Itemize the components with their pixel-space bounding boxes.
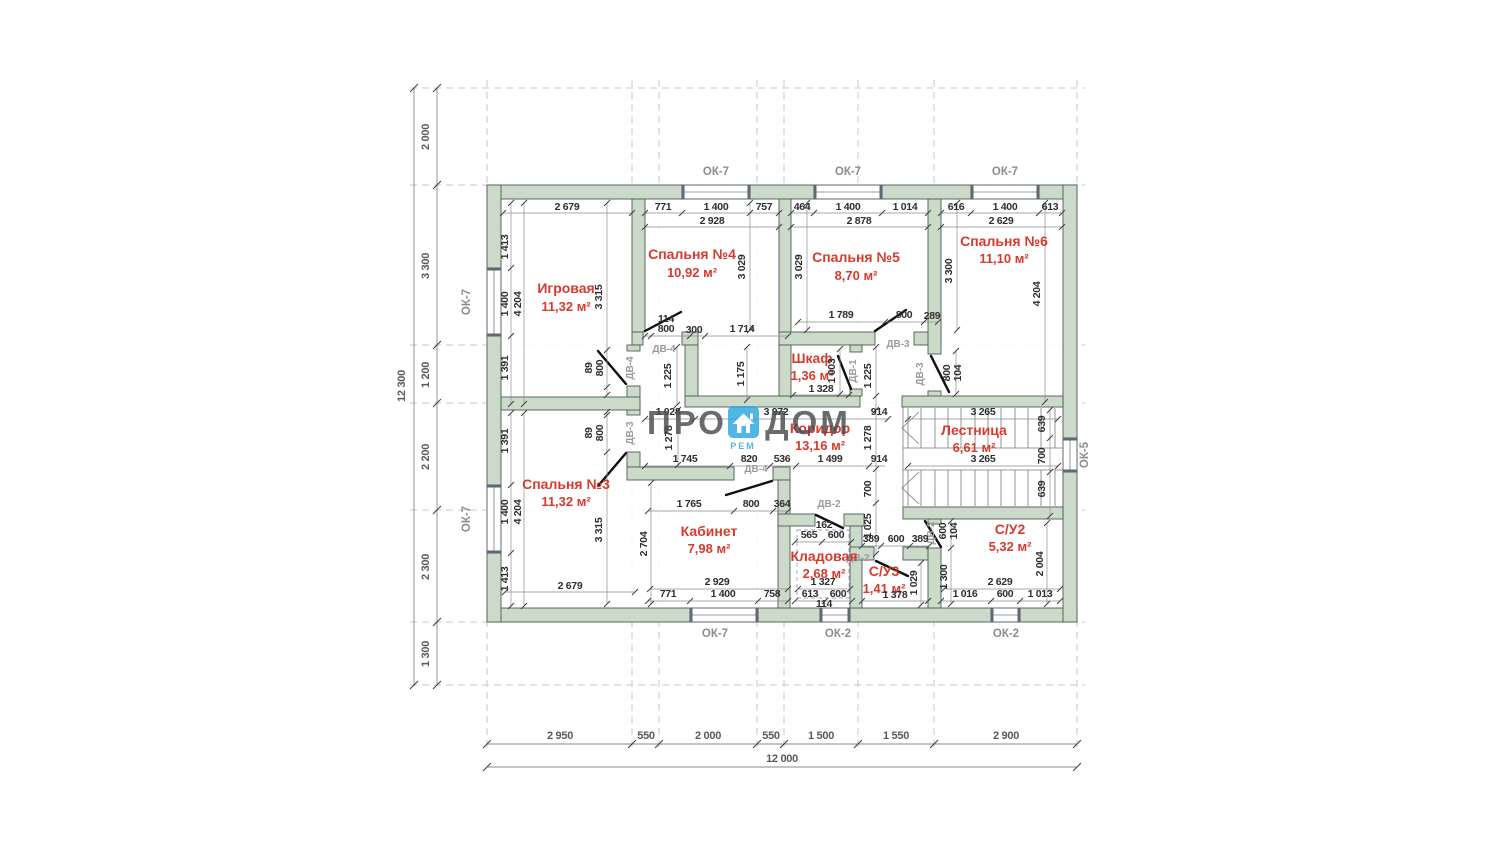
axis-bottom-total: 12 000 [766,753,798,765]
dim-label: 3 315 [593,284,605,309]
dim-label: 1 328 [809,383,834,395]
dim-label: 1 013 [1028,588,1053,600]
window-label-ok7: ОК-7 [702,628,728,640]
door-label-dv4: ДВ-4 [744,464,768,475]
door-label-dv3: ДВ-3 [915,362,926,386]
dim-label: 289 [924,310,941,322]
window-label-ok7: ОК-7 [461,289,473,315]
logo-text-dom: ДОМ [765,404,851,441]
room-label-lestnica: Лестница [941,422,1007,438]
axis-left-seg: 3 300 [420,253,432,279]
dim-label: 364 [774,498,791,510]
dim-label: 1 745 [673,453,698,465]
dim-label: 1 391 [499,355,511,380]
logo-text-pro: ПРО [647,404,727,441]
room-label-bedroom4: Спальня №4 [648,246,736,262]
dim-label: 1 003 [826,358,838,383]
dim-label: 2 929 [705,576,730,588]
door-label-dv4: ДВ-4 [625,356,636,380]
axis-left-seg: 1 300 [420,641,432,667]
dim-label: 4 204 [512,499,524,524]
room-area-bedroom5: 8,70 м² [835,268,879,283]
dim-label: 1 400 [836,201,861,213]
door-label-dv1: ДВ-1 [848,359,859,383]
window-label-ok7: ОК-7 [461,506,473,532]
dim-label: 1 225 [662,363,674,388]
dim-label: 800 [896,309,913,321]
axis-left-seg: 1 200 [420,362,432,388]
dim-label: 1 300 [938,564,950,589]
window-label-ok2: ОК-2 [993,628,1019,640]
window-ok7-bottom [690,608,758,622]
dim-label: 2 878 [847,215,872,227]
dim-label: 4 204 [512,291,524,316]
dim-label: 800 [594,359,606,376]
axis-left-seg: 2 200 [420,444,432,470]
dim-label: 3 300 [943,258,955,283]
dim-label: 114 [816,598,832,610]
dim-label: 914 [871,406,888,418]
room-area-igrovaya: 11,32 м² [541,299,591,314]
logo-text-rem: РЕМ [730,441,756,451]
dim-label: 464 [794,201,811,213]
dim-label: 800 [658,323,675,335]
dim-label: 820 [741,453,758,465]
dim-label: 1 499 [818,453,843,465]
dim-label: 1 400 [499,291,511,316]
dim-label: 3 265 [971,406,996,418]
axis-bottom-seg: 550 [762,730,780,742]
dim-label: 1 400 [993,201,1018,213]
axis-bottom-seg: 2 000 [695,730,721,742]
dim-label: 2 629 [989,215,1014,227]
window-label-ok7: ОК-7 [992,166,1018,178]
dim-label: 1 400 [704,201,729,213]
dim-label: 1 714 [730,323,755,335]
dim-label: 1 175 [735,361,747,386]
floor-plan-page: 2 000 3 300 1 200 2 200 2 300 1 300 12 3… [0,0,1500,849]
door-label-dv3: ДВ-3 [625,421,636,445]
dim-label: 4 204 [1031,281,1043,306]
dim-label: 2 629 [988,576,1013,588]
dim-label: 2 928 [700,215,725,227]
dim-label: 600 [830,588,847,600]
dim-label: 1 400 [499,499,511,524]
window-label-ok7: ОК-7 [703,166,729,178]
dim-label: 600 [997,588,1014,600]
room-area-bedroom6: 11,10 м² [979,251,1029,266]
dim-label: 758 [764,588,781,600]
axis-bottom-seg: 1 500 [808,730,834,742]
dim-label: 1 278 [862,425,874,450]
door-label-dv2: ДВ-2 [817,499,841,510]
room-area-su2: 5,32 м² [989,539,1033,554]
room-label-kladovaya: Кладовая [790,548,857,564]
window-ok7-top-2 [814,185,882,199]
dim-label: 600 [888,533,905,545]
window-label-ok7: ОК-7 [835,166,861,178]
dim-label: 104 [952,364,964,381]
room-label-bedroom6: Спальня №6 [960,233,1048,249]
dim-label: 3 029 [736,254,748,279]
room-label-bedroom3: Спальня №3 [522,476,610,492]
axis-left-seg: 2 300 [420,554,432,580]
room-label-kabinet: Кабинет [681,523,738,539]
axis-bottom-seg: 2 900 [993,730,1019,742]
dim-label: 639 [1036,480,1048,497]
dim-label: 536 [774,453,791,465]
dim-label: 771 [655,201,672,213]
dim-label: 800 [743,498,760,510]
dim-label: 1 327 [811,576,836,588]
window-ok5-right [1063,438,1077,472]
dim-label: 3 265 [971,453,996,465]
dim-label: 2 004 [1034,551,1046,576]
room-area-bedroom4: 10,92 м² [667,265,718,280]
room-label-su3: С/У3 [869,563,900,579]
window-ok7-top-3 [971,185,1039,199]
dim-label: 2 704 [638,531,650,556]
axis-left-total: 12 300 [396,370,408,402]
dim-label: 639 [1036,415,1048,432]
window-ok2-bottom-1 [820,608,850,622]
dim-label: 565 [801,529,818,541]
dim-label: 3 315 [593,517,605,542]
house-icon [728,406,759,438]
dim-label: 1 016 [953,588,978,600]
dim-label: 1 225 [862,363,874,388]
dim-label: 1 391 [499,428,511,453]
dim-label: 1 413 [499,234,511,259]
room-label-igrovaya: Игровая [537,280,594,296]
dim-label: 616 [948,201,965,213]
dim-label: 3 029 [793,254,805,279]
dim-label: 757 [756,201,773,213]
window-ok2-bottom-2 [991,608,1020,622]
dim-label: 914 [871,453,888,465]
axis-bottom-seg: 550 [637,730,655,742]
window-ok7-top-1 [682,185,750,199]
dim-label: 300 [686,324,703,336]
dim-label: 1 029 [908,570,920,595]
dim-label: 389 [863,533,880,545]
axis-left-seg: 2 000 [420,124,432,150]
dim-label: 1 400 [711,588,736,600]
dim-label: 700 [1036,447,1048,464]
window-label-ok5: ОК-5 [1079,441,1091,468]
room-area-bedroom3: 11,32 м² [541,494,591,509]
dim-label: 1 378 [883,589,908,601]
dim-label: 1 413 [499,566,511,591]
room-area-kabinet: 7,98 м² [688,541,732,556]
door-label-dv3: ДВ-3 [886,339,910,350]
dim-label: 104 [948,522,960,539]
room-label-su2: С/У2 [995,521,1026,537]
dim-label: 600 [828,529,845,541]
floor-plan-canvas: 2 000 3 300 1 200 2 200 2 300 1 300 12 3… [0,0,1500,849]
dim-label: 1 014 [893,201,918,213]
room-label-bedroom5: Спальня №5 [812,249,900,265]
dim-label: 1 789 [829,309,854,321]
dim-label: 2 679 [555,201,580,213]
dim-label: 613 [1042,201,1059,213]
axis-bottom-seg: 1 550 [883,730,909,742]
axis-bottom-seg: 2 950 [547,730,573,742]
dim-label: 1 765 [677,498,702,510]
window-label-ok2: ОК-2 [825,628,851,640]
door-label-dv4: ДВ-4 [652,344,676,355]
dim-label: 700 [862,480,874,497]
dim-label: 389 [912,533,929,545]
dim-label: 771 [660,588,677,600]
dim-label: 800 [594,424,606,441]
dim-label: 2 679 [558,580,583,592]
